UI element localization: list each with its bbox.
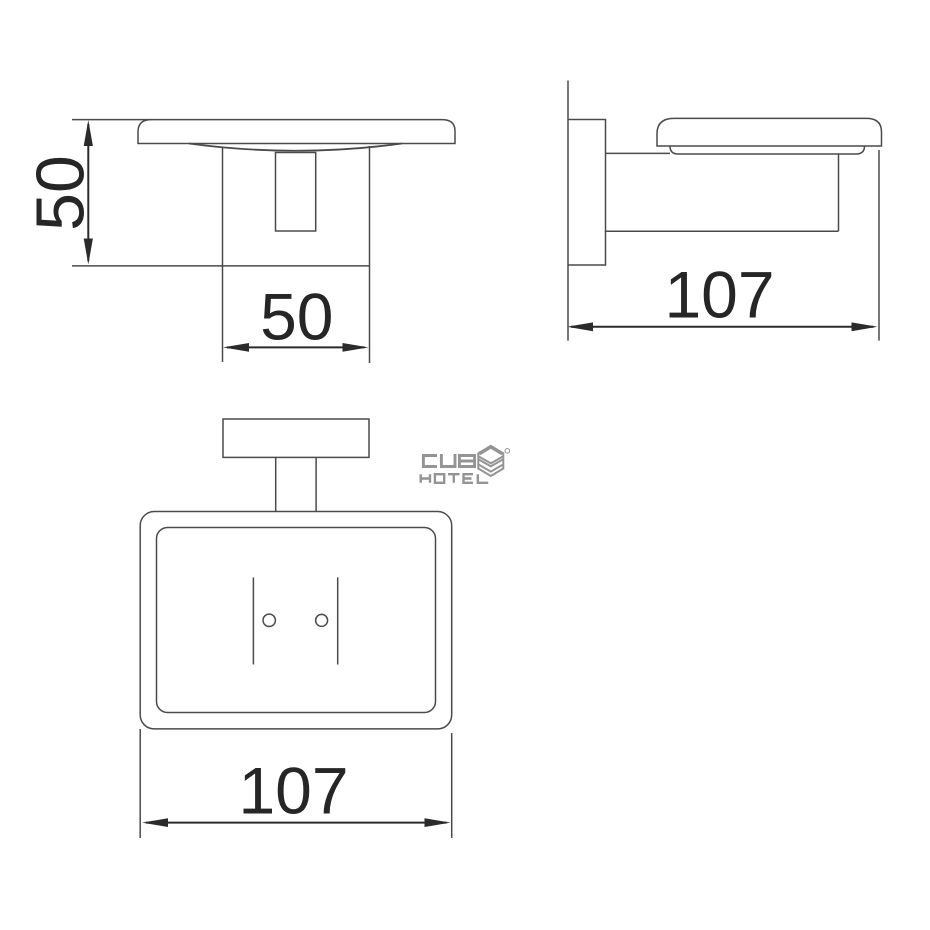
svg-text:50: 50 bbox=[260, 280, 333, 354]
svg-text:50: 50 bbox=[23, 155, 99, 231]
svg-text:107: 107 bbox=[238, 754, 348, 828]
svg-text:107: 107 bbox=[664, 258, 774, 332]
